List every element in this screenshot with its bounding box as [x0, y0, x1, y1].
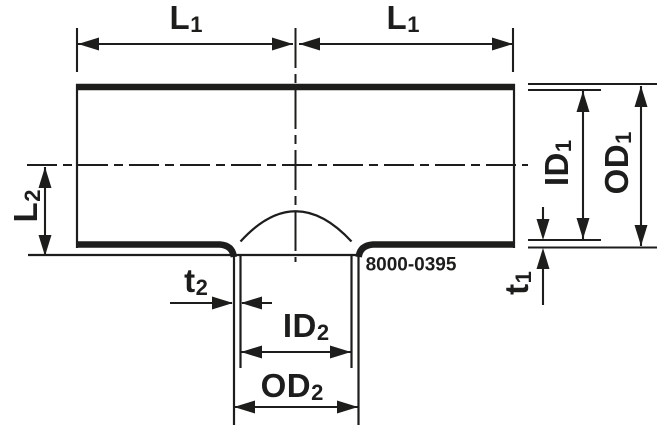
- arrowhead-left-icon: [241, 346, 262, 359]
- dimension-l2: L2: [7, 167, 52, 256]
- arrowhead-up-icon: [577, 91, 590, 112]
- arrowhead-left-icon: [78, 38, 99, 51]
- arrowhead-up-icon: [635, 86, 648, 107]
- arrowhead-left-icon: [299, 38, 320, 51]
- dimension-id2: ID2: [241, 307, 351, 359]
- arrowhead-up-icon: [537, 248, 550, 269]
- arrowhead-up-icon: [39, 167, 52, 188]
- arrowhead-right-icon: [330, 346, 351, 359]
- arrowhead-down-icon: [39, 235, 52, 256]
- dimension-l1-left: L1: [77, 0, 293, 72]
- part-number: 8000-0395: [366, 255, 457, 276]
- arrowhead-right-icon: [492, 38, 513, 51]
- dimension-id1: ID1: [538, 91, 590, 239]
- dim-label-t1: t1: [498, 271, 536, 295]
- dimension-t2: t2: [170, 262, 272, 310]
- dim-label-od2: OD2: [261, 367, 324, 405]
- dimension-l1-right: L1: [299, 0, 513, 72]
- arrowhead-down-icon: [537, 219, 550, 240]
- centerlines: [27, 28, 528, 262]
- dim-label-t2: t2: [184, 262, 208, 300]
- dimension-t1: t1: [498, 207, 550, 305]
- dim-label-l2: L2: [7, 190, 45, 223]
- dimension-od1: OD1: [598, 86, 648, 246]
- arrowhead-right-icon: [337, 401, 358, 414]
- dim-label-l1-right: L1: [387, 0, 420, 37]
- arrowhead-left-icon: [241, 297, 262, 310]
- dim-label-id1: ID1: [538, 140, 576, 186]
- dimension-od2: OD2: [234, 367, 358, 414]
- dim-label-l1-left: L1: [170, 0, 203, 37]
- dim-label-id2: ID2: [283, 307, 329, 345]
- arrowhead-left-icon: [234, 401, 255, 414]
- arrowhead-right-icon: [212, 297, 233, 310]
- arrowhead-down-icon: [635, 225, 648, 246]
- arrowhead-right-icon: [272, 38, 293, 51]
- dim-label-od1: OD1: [598, 132, 636, 195]
- arrowhead-down-icon: [577, 218, 590, 239]
- tee-fitting-drawing: L1 L1 L2 t2 ID2: [0, 0, 659, 425]
- drawing-canvas: L1 L1 L2 t2 ID2: [0, 0, 659, 425]
